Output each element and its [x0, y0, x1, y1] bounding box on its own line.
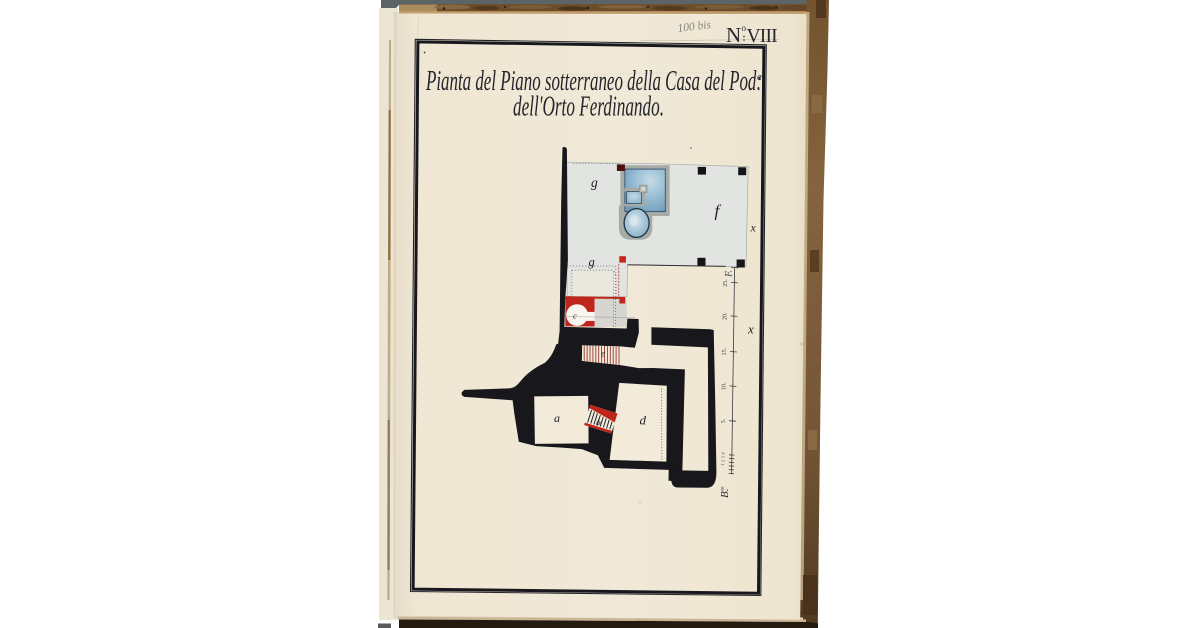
svg-text:x: x	[750, 221, 757, 235]
svg-text:VIII: VIII	[747, 26, 778, 47]
svg-text:c: c	[573, 311, 577, 321]
svg-text:10.: 10.	[722, 382, 728, 390]
svg-text:e: e	[601, 349, 605, 359]
svg-text:5.: 5.	[721, 418, 727, 423]
svg-text:x: x	[747, 322, 754, 337]
svg-text:za: za	[721, 486, 726, 492]
svg-text:dell'Orto Ferdinando.: dell'Orto Ferdinando.	[513, 92, 664, 123]
svg-text:15.: 15.	[722, 348, 728, 356]
svg-text:25.: 25.	[723, 279, 729, 287]
svg-text:1: 1	[720, 464, 725, 466]
svg-text:F.: F.	[724, 270, 734, 278]
svg-text:4: 4	[721, 453, 726, 455]
svg-text:3: 3	[720, 456, 725, 458]
svg-text:g: g	[591, 175, 598, 190]
svg-text:2: 2	[720, 460, 725, 462]
svg-text:e: e	[757, 71, 762, 83]
svg-text:a: a	[554, 411, 560, 425]
svg-text:d: d	[640, 413, 647, 428]
svg-text:20.: 20.	[723, 312, 729, 320]
svg-text:N: N	[726, 23, 741, 47]
svg-text:g: g	[589, 255, 595, 269]
